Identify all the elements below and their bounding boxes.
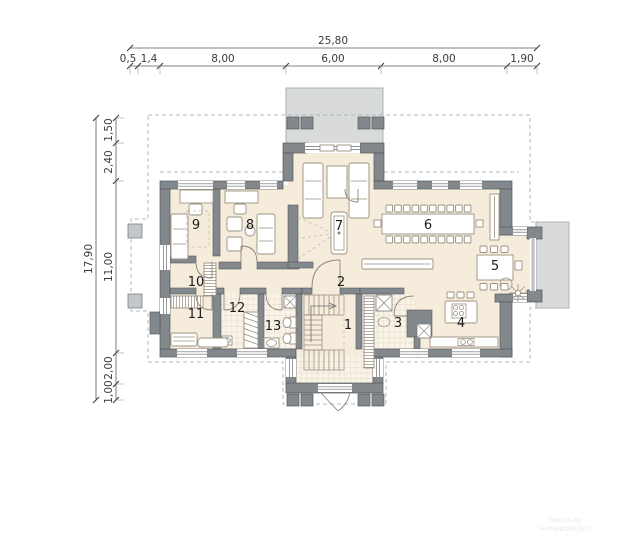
chair <box>456 205 463 212</box>
window <box>393 181 417 189</box>
chair <box>395 236 402 243</box>
chair <box>447 292 454 298</box>
room-label-5: 5 <box>491 259 499 274</box>
room-label-6: 6 <box>424 218 432 233</box>
partition-wall <box>360 288 404 294</box>
chair <box>386 236 393 243</box>
window <box>373 359 383 377</box>
dim-left-seg-0: 1,50 <box>103 118 115 141</box>
room-label-3: 3 <box>394 316 402 331</box>
terrace-column <box>287 117 299 129</box>
room-label-7: 7 <box>335 219 343 234</box>
chair <box>476 220 483 227</box>
chair <box>430 205 437 212</box>
chair <box>457 292 464 298</box>
chair <box>189 204 202 215</box>
partition-wall <box>356 294 362 349</box>
window <box>530 238 536 291</box>
bidet <box>283 334 291 344</box>
floor-plan-page: 1 2 3 4 5 6 7 8 9 10 11 12 13 25,80 0,5 … <box>0 0 638 556</box>
room-label-9: 9 <box>192 218 200 233</box>
room-label-8: 8 <box>246 218 254 233</box>
dim-top-seg-0: 0,5 <box>120 53 137 65</box>
window <box>160 298 170 314</box>
window <box>286 359 296 377</box>
wall <box>150 312 160 334</box>
room-label-4: 4 <box>457 316 465 331</box>
chair <box>438 236 445 243</box>
porch-column <box>301 394 313 406</box>
dimension-top: 25,80 0,5 1,4 8,00 6,00 8,00 1,90 <box>120 35 537 66</box>
chair <box>430 236 437 243</box>
chair <box>501 284 508 291</box>
chair <box>438 205 445 212</box>
dim-left-seg-1: 2,40 <box>103 150 115 173</box>
chair <box>447 205 454 212</box>
window <box>432 181 448 189</box>
toilet <box>283 318 291 328</box>
bench <box>198 338 228 347</box>
sofa <box>349 163 369 218</box>
chair <box>464 236 471 243</box>
window <box>177 349 207 357</box>
porch-column <box>372 394 384 406</box>
wall <box>283 153 293 181</box>
window <box>237 349 267 357</box>
chair <box>412 236 419 243</box>
partition-wall <box>288 262 313 268</box>
sofa <box>171 214 188 259</box>
chair <box>491 284 498 291</box>
chair <box>421 205 428 212</box>
window <box>513 227 527 235</box>
chair <box>386 205 393 212</box>
room-label-11: 11 <box>188 307 205 322</box>
chair <box>456 236 463 243</box>
sill-cabinet <box>320 145 334 151</box>
sill-cabinet <box>337 145 351 151</box>
room-label-12: 12 <box>229 301 246 316</box>
room-label-13: 13 <box>265 319 282 334</box>
plant-pot <box>516 291 521 296</box>
wall <box>374 153 384 181</box>
watermark-line1: Design by <box>549 516 582 524</box>
shower-ladder <box>244 312 258 348</box>
window <box>160 245 170 270</box>
dim-top-seg-1: 1,4 <box>141 53 158 65</box>
terrace-column <box>358 117 370 129</box>
door-leaf <box>320 392 338 411</box>
sofa <box>257 214 275 254</box>
window <box>178 181 213 189</box>
partition-wall <box>302 288 312 294</box>
chair <box>374 220 381 227</box>
partition-wall <box>219 262 241 269</box>
floor-plan-canvas: 1 2 3 4 5 6 7 8 9 10 11 12 13 25,80 0,5 … <box>0 0 638 556</box>
window <box>400 349 428 357</box>
chair <box>515 261 522 270</box>
window <box>260 181 277 189</box>
wall <box>527 227 542 239</box>
terrace-column <box>301 117 313 129</box>
partition-wall <box>213 189 220 256</box>
dim-top-seg-2: 8,00 <box>211 53 234 65</box>
porch-column <box>287 394 299 406</box>
chair <box>234 204 246 214</box>
window <box>318 384 352 392</box>
chair <box>403 205 410 212</box>
door-arc <box>338 392 350 411</box>
chair <box>491 246 498 253</box>
desk <box>225 191 258 203</box>
partition-wall <box>282 288 302 294</box>
dim-top-total: 25,80 <box>318 35 348 47</box>
chair <box>480 284 487 291</box>
dim-left-seg-4: 1,00 <box>103 380 115 403</box>
room-label-10: 10 <box>188 275 205 290</box>
chair <box>421 236 428 243</box>
dim-left-total: 17,90 <box>83 244 95 274</box>
partition-wall <box>296 294 302 349</box>
armchair <box>227 217 242 231</box>
armchair <box>227 237 242 251</box>
tall-closet <box>364 296 374 368</box>
wall <box>527 290 542 302</box>
chair <box>464 205 471 212</box>
partition-wall <box>288 205 298 262</box>
window <box>460 181 482 189</box>
partition-wall <box>258 294 264 349</box>
watermark-line2: HOMEKONCEPT <box>540 525 590 533</box>
wall <box>360 143 384 153</box>
wall <box>283 143 307 153</box>
dim-top-seg-5: 1,90 <box>510 53 533 65</box>
chair <box>412 205 419 212</box>
chair <box>467 292 474 298</box>
coffee-table <box>327 166 347 198</box>
sofa <box>303 163 323 218</box>
desk <box>180 190 213 203</box>
dimension-left: 17,90 1,50 2,40 11,00 2,00 1,00 <box>83 118 116 404</box>
room-label-1: 1 <box>344 318 352 333</box>
chair <box>447 236 454 243</box>
partition-wall <box>240 288 266 294</box>
eave-column <box>128 294 142 308</box>
watermark: Design by HOMEKONCEPT <box>540 516 590 533</box>
porch-column <box>358 394 370 406</box>
window <box>452 349 480 357</box>
chair <box>480 246 487 253</box>
dresser <box>171 333 197 346</box>
chair <box>403 236 410 243</box>
chair <box>395 205 402 212</box>
eave-column <box>128 224 142 238</box>
window <box>227 181 245 189</box>
dim-left-seg-3: 2,00 <box>103 356 115 379</box>
dim-left-seg-2: 11,00 <box>103 252 115 282</box>
room-label-2: 2 <box>337 275 345 290</box>
dim-top-seg-4: 8,00 <box>432 53 455 65</box>
wall <box>373 349 512 357</box>
dim-top-seg-3: 6,00 <box>321 53 344 65</box>
radiator <box>204 263 216 296</box>
terrace-column <box>372 117 384 129</box>
chair <box>501 246 508 253</box>
